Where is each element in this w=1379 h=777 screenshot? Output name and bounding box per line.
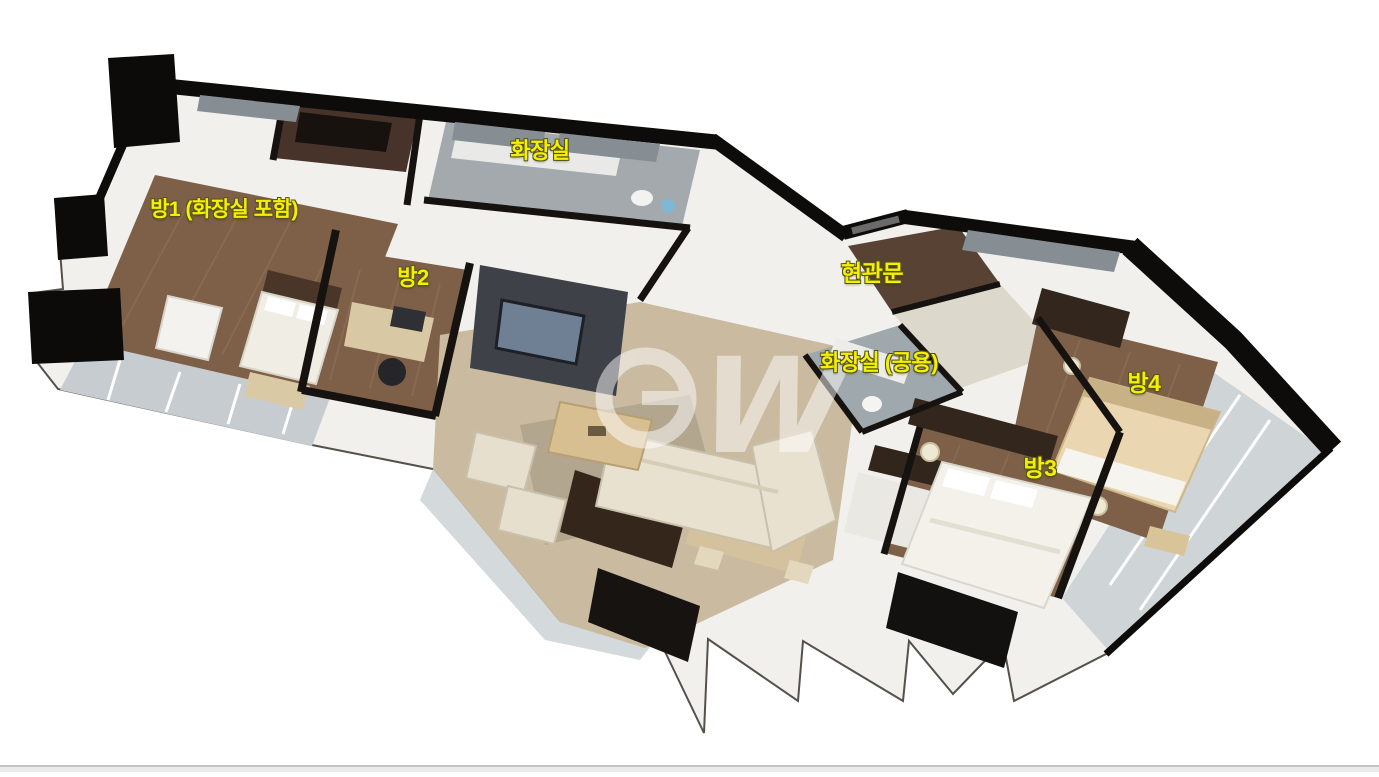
bottom-divider-band xyxy=(0,767,1379,772)
label-bathroom1: 화장실 xyxy=(510,133,569,165)
floor-plan-rendering: W xyxy=(0,0,1379,777)
floor-plan-image: W 방1 (화장실 포함) 화장실 방2 현관문 화장실 (공용) 방3 방4 xyxy=(0,0,1379,777)
label-room1: 방1 (화장실 포함) xyxy=(150,193,298,223)
label-room4: 방4 xyxy=(1128,364,1161,398)
label-shared-bathroom: 화장실 (공용) xyxy=(820,345,938,377)
label-entrance-door: 현관문 xyxy=(841,254,903,288)
label-room3: 방3 xyxy=(1024,449,1057,483)
label-room2: 방2 xyxy=(397,260,428,292)
